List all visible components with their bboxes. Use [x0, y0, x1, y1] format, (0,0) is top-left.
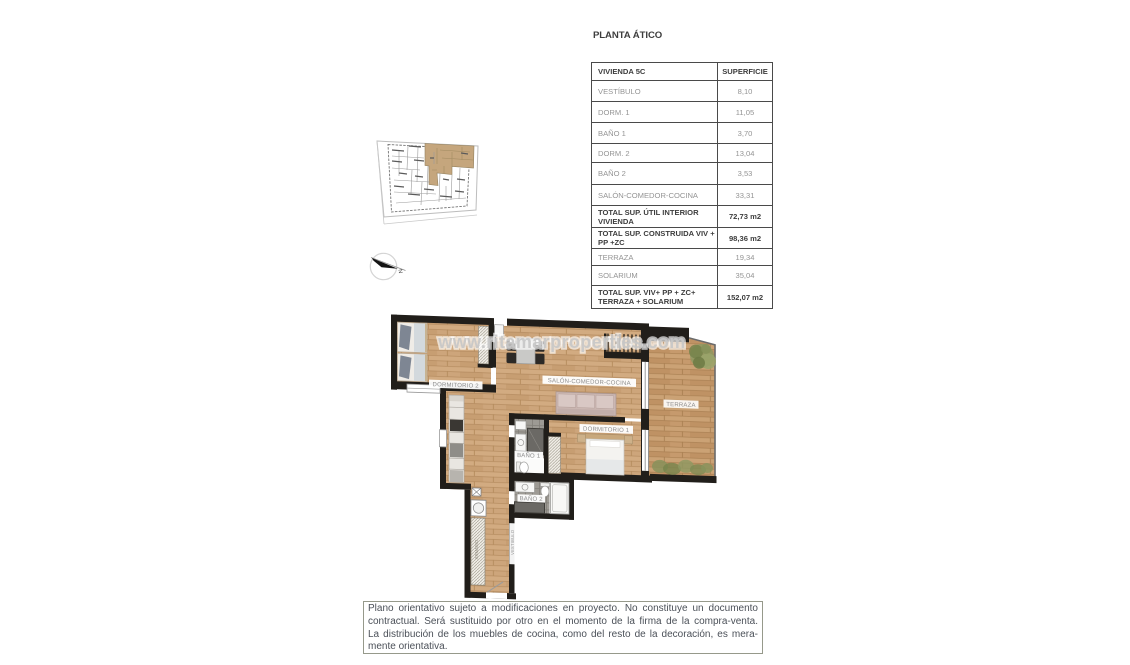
svg-text:N: N	[396, 269, 403, 274]
svg-text:VESTIBULO: VESTIBULO	[510, 529, 515, 555]
svg-text:ARMARIO: ARMARIO	[474, 539, 479, 559]
svg-text:BAÑO 1: BAÑO 1	[517, 452, 541, 460]
svg-text:BAÑO 2: BAÑO 2	[520, 495, 544, 503]
svg-text:TERRAZA: TERRAZA	[666, 402, 695, 409]
svg-text:www.ritamarproperties.com: www.ritamarproperties.com	[437, 332, 685, 352]
